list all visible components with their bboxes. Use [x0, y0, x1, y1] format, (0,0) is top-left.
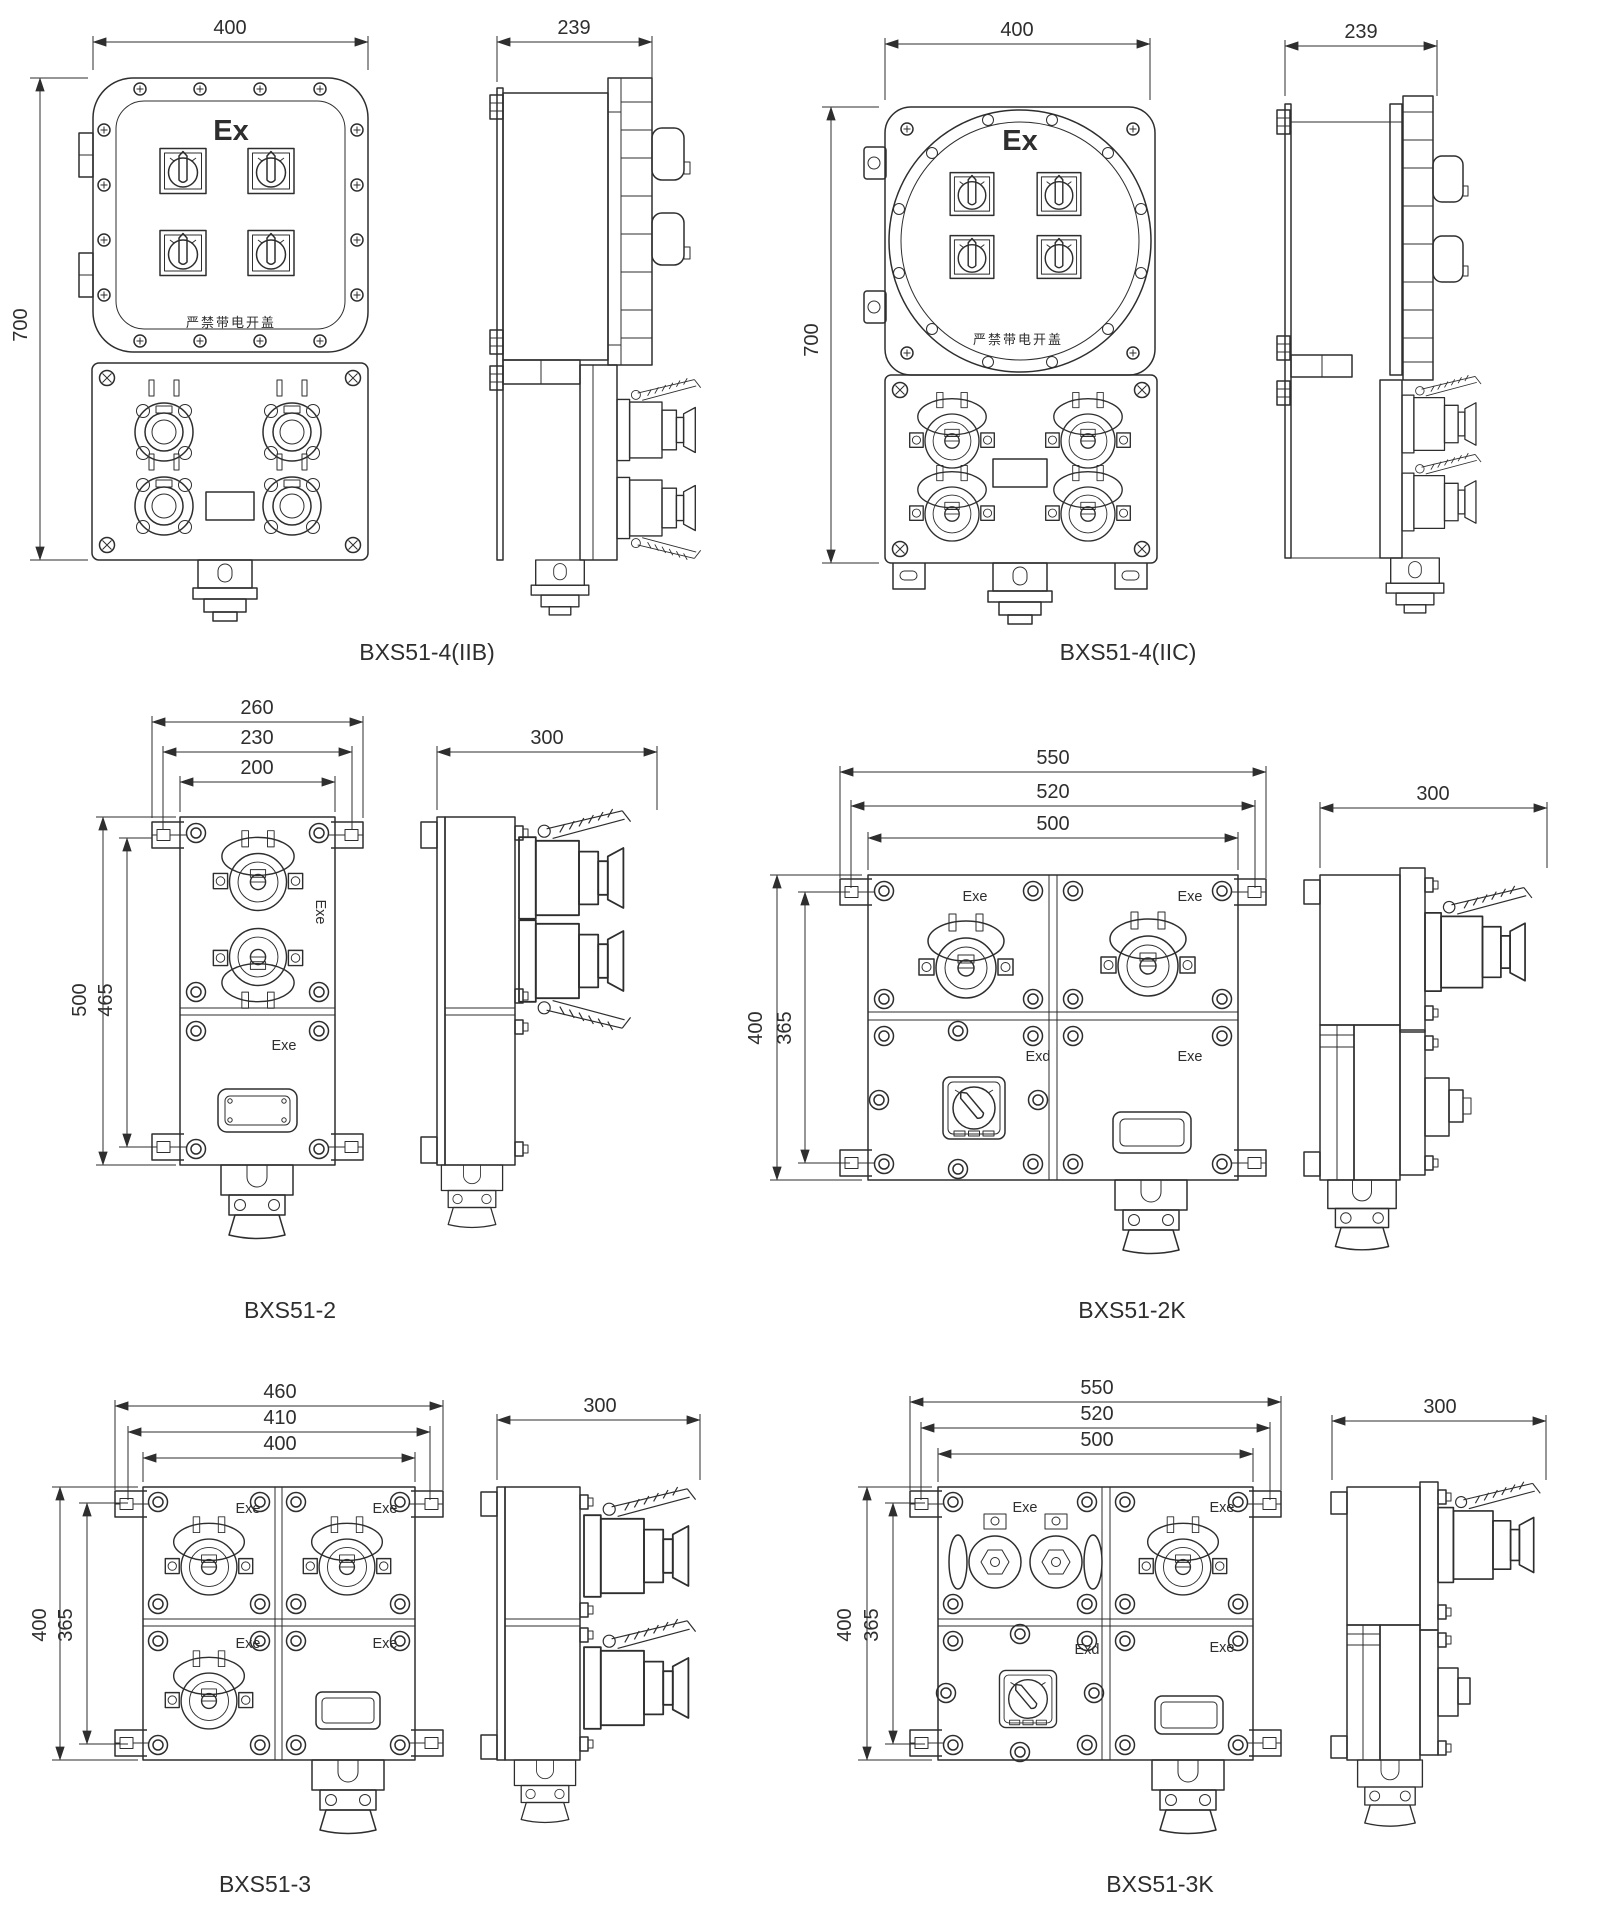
bolt-icon [134, 83, 146, 95]
caption: BXS51-3K [1106, 1871, 1214, 1897]
exe-label: Exe [373, 1636, 398, 1652]
plug-side-icon [1438, 1482, 1540, 1583]
socket-icon [135, 380, 193, 461]
cable-gland-icon [1328, 1180, 1396, 1250]
socket-icon [1139, 1517, 1226, 1595]
dim-widths: 550 520 500 [910, 1377, 1281, 1500]
socket-pair-side-on [949, 1514, 1102, 1589]
socket-icon [165, 1651, 252, 1729]
exe-label: Exe [312, 900, 328, 925]
mounting-lug-icon [329, 1134, 363, 1160]
dim-label: 550 [1080, 1377, 1113, 1399]
enclosure-outline [868, 875, 1238, 1180]
exe-label: Exe [373, 1501, 398, 1517]
dim-label-depth: 300 [530, 727, 563, 749]
rotary-switch-icon [999, 1670, 1056, 1727]
mounting-foot [893, 563, 925, 589]
mounting-lug-icon [152, 822, 186, 848]
mounting-foot [1115, 563, 1147, 589]
cable-gland-icon [531, 560, 589, 615]
bolt-icon [944, 1493, 963, 1512]
front-view-cover: Ex 严禁带电开盖 [79, 78, 368, 352]
hinge-tab [864, 147, 886, 179]
socket-icon [135, 454, 193, 535]
socket-box-outline [92, 363, 368, 560]
rotary-switch-icon [160, 149, 206, 194]
bolt-icon [149, 1493, 168, 1512]
rotary-switch-icon [248, 149, 294, 194]
dim-label: 550 [1036, 747, 1069, 769]
side-view: 300 [481, 1395, 700, 1822]
mounting-lug-icon [840, 1150, 874, 1176]
mount-clip [1331, 1736, 1347, 1758]
cable-gland-icon [441, 1165, 502, 1227]
dim-label: 410 [263, 1407, 296, 1429]
dim-label-depth: 239 [557, 17, 590, 39]
screw-icon [893, 383, 908, 398]
dim-label: 460 [263, 1381, 296, 1403]
front-view: Exe Exe [152, 817, 363, 1239]
mounting-lug-icon [152, 1134, 186, 1160]
dim-label: 500 [69, 983, 91, 1016]
front-view-socket-box [92, 363, 368, 621]
dim-label-depth: 239 [1344, 21, 1377, 43]
dim-heights: 400 365 [29, 1487, 138, 1760]
exe-label: Exe [1178, 889, 1203, 905]
mount-clip [1304, 880, 1320, 904]
ex-marking: Ex [1002, 125, 1037, 157]
plug-side-icon [519, 920, 631, 1030]
plug-side-icon [617, 378, 701, 460]
cable-gland-icon [221, 1165, 293, 1239]
front-view: Exe Exe Exd Exe [910, 1487, 1281, 1834]
cable-gland-icon [988, 563, 1052, 624]
lid-profile [1400, 1030, 1425, 1175]
plug-side-icon [584, 1487, 696, 1597]
mount-clip [421, 822, 437, 848]
socket-icon [1046, 465, 1131, 541]
bolt-icon [187, 824, 206, 843]
mounting-plate [497, 1487, 505, 1760]
dim-label-width: 400 [213, 17, 246, 39]
drawing-bxs51-4iic: 400 700 Ex 严禁带电开盖 239 [801, 19, 1481, 665]
caption: BXS51-4(IIC) [1060, 639, 1197, 665]
dim-height: 700 [801, 107, 879, 563]
switch-dome [1433, 236, 1463, 282]
technical-drawing-sheet: 400 700 Ex 严禁带电开盖 239 [0, 0, 1616, 1927]
mount-clip [1277, 110, 1290, 134]
exe-label: Exe [963, 889, 988, 905]
dim-label-depth: 300 [1416, 783, 1449, 805]
dim-widths: 260 230 200 [152, 697, 363, 830]
switch-dome [1433, 156, 1463, 202]
mounting-lug-icon [1232, 879, 1266, 905]
dim-label: 365 [774, 1011, 796, 1044]
side-view: 300 [1304, 783, 1547, 1250]
socket-icon [303, 1517, 390, 1595]
exe-label: Exe [272, 1038, 297, 1054]
dim-label: 365 [861, 1608, 883, 1641]
mounting-lug-icon [1232, 1150, 1266, 1176]
plug-side-icon [1425, 886, 1532, 991]
hinge-tab [864, 291, 886, 323]
ex-marking: Ex [213, 115, 248, 147]
mounting-plate [1285, 104, 1291, 558]
dim-label-depth: 300 [1423, 1396, 1456, 1418]
dim-heights: 400 365 [745, 875, 862, 1180]
screw-icon [100, 371, 115, 386]
caption: BXS51-2 [244, 1297, 336, 1323]
socket-icon [213, 929, 302, 1009]
cable-gland-icon [1358, 1760, 1423, 1826]
mounting-lug-icon [409, 1491, 443, 1517]
front-view-socket-box [885, 375, 1157, 624]
exe-label: Exe [236, 1636, 261, 1652]
dim-label: 520 [1036, 781, 1069, 803]
dim-label: 230 [240, 727, 273, 749]
drawing-bxs51-4iib: 400 700 Ex 严禁带电开盖 239 [10, 17, 701, 665]
dim-label: 520 [1080, 1403, 1113, 1425]
bolt-icon [875, 882, 894, 901]
mounting-plate [437, 817, 445, 1165]
switch-dome [652, 213, 684, 265]
plug-side-icon [584, 1619, 696, 1729]
rotary-switch-icon [1037, 173, 1081, 216]
dim-label-height: 700 [801, 323, 823, 356]
dim-widths: 460 410 400 [115, 1381, 443, 1500]
dim-label: 400 [263, 1433, 296, 1455]
rotary-switch-icon [943, 1077, 1005, 1139]
bolt-icon [580, 1495, 593, 1509]
front-view: Exe Exe Exd Exe [840, 875, 1266, 1254]
rotary-switch-icon [950, 236, 994, 279]
side-view: 239 [490, 17, 701, 615]
exe-label: Exe [1013, 1500, 1038, 1516]
lid-profile [1400, 868, 1425, 1032]
dim-width: 400 [93, 17, 368, 70]
exd-label: Exd [1075, 1642, 1100, 1658]
dim-label: 500 [1036, 813, 1069, 835]
mount-clip [481, 1735, 497, 1759]
socket-icon [213, 831, 302, 911]
warning-text: 严禁带电开盖 [186, 315, 276, 330]
lid-profile [1420, 1630, 1438, 1755]
socket-icon [919, 914, 1013, 998]
caption: BXS51-4(IIB) [359, 639, 495, 665]
drawing-bxs51-2k: 550 520 500 400 365 Exe Exe Exd Exe [745, 747, 1547, 1323]
dim-label: 400 [29, 1608, 51, 1641]
mounting-lug-icon [910, 1491, 944, 1517]
nameplate [1113, 1112, 1191, 1153]
plug-side-icon [519, 809, 631, 919]
dim-label: 400 [745, 1011, 767, 1044]
mount-clip [481, 1492, 497, 1516]
mounting-lug-icon [115, 1491, 149, 1517]
dim-label: 365 [55, 1608, 77, 1641]
rotary-switch-icon [1037, 236, 1081, 279]
dim-widths: 550 520 500 [840, 747, 1266, 888]
nameplate [218, 1089, 297, 1132]
plug-side-icon [1402, 375, 1481, 453]
cable-gland-icon [1386, 558, 1444, 613]
nameplate [993, 459, 1047, 487]
exe-label: Exe [236, 1501, 261, 1517]
mounting-lug-icon [115, 1730, 149, 1756]
rotary-switch-icon [248, 231, 294, 276]
rotary-switch-icon [950, 173, 994, 216]
mounting-plate [497, 88, 503, 560]
mounting-lug-icon [910, 1730, 944, 1756]
cable-gland-icon [1152, 1760, 1224, 1834]
exd-label: Exd [1026, 1049, 1051, 1065]
exe-label: Exe [1210, 1640, 1235, 1656]
side-view: 300 [1331, 1396, 1546, 1826]
dim-heights: 500 465 [69, 817, 176, 1165]
mount-clip [421, 1137, 437, 1163]
drawing-bxs51-2: 260 230 200 500 465 Exe Exe 300 [69, 697, 657, 1323]
socket-icon [263, 380, 321, 461]
socket-icon [1101, 912, 1195, 996]
front-view: Exe Exe Exe Exe [115, 1487, 443, 1834]
side-view: 300 [421, 727, 657, 1227]
socket-icon [1046, 392, 1131, 468]
plug-side-icon [1402, 453, 1481, 531]
exe-label: Exe [1178, 1049, 1203, 1065]
socket-icon [910, 465, 995, 541]
dim-label: 400 [834, 1608, 856, 1641]
cable-gland-icon [312, 1760, 384, 1834]
dim-label: 260 [240, 697, 273, 719]
socket-box-outline [885, 375, 1157, 563]
drawing-bxs51-3k: 550 520 500 400 365 Exe [834, 1377, 1546, 1897]
mount-clip [1304, 1152, 1320, 1176]
lid-profile [1403, 96, 1433, 380]
drawing-bxs51-3: 460 410 400 400 365 Exe Exe Exe Exe [29, 1381, 700, 1897]
socket-icon [263, 454, 321, 535]
cable-gland-icon [193, 560, 257, 621]
mounting-lug-icon [409, 1730, 443, 1756]
warning-text: 严禁带电开盖 [973, 332, 1063, 347]
bolt-icon [901, 123, 913, 135]
exe-label: Exe [1210, 1500, 1235, 1516]
bolt-icon [1425, 878, 1438, 892]
mount-clip [1331, 1492, 1347, 1514]
caption: BXS51-3 [219, 1871, 311, 1897]
dim-label-height: 700 [10, 308, 32, 341]
lid-profile [608, 78, 652, 365]
dim-heights: 400 365 [834, 1487, 932, 1760]
dim-label-width: 400 [1000, 19, 1033, 41]
bolt-icon [1438, 1490, 1451, 1504]
dim-label: 200 [240, 757, 273, 779]
front-view-cover: Ex 严禁带电开盖 [864, 107, 1155, 375]
dim-label: 465 [95, 983, 117, 1016]
cable-gland-icon [1115, 1180, 1187, 1254]
side-view: 239 [1277, 21, 1481, 613]
drawing-sheet: 400 700 Ex 严禁带电开盖 239 [0, 0, 1616, 1927]
mounting-lug-icon [1247, 1491, 1281, 1517]
nameplate [206, 492, 254, 520]
rotary-switch-icon [160, 231, 206, 276]
caption: BXS51-2K [1078, 1297, 1186, 1323]
socket-icon [910, 392, 995, 468]
dim-height: 700 [10, 78, 88, 560]
dim-label-depth: 300 [583, 1395, 616, 1417]
mounting-lug-icon [840, 879, 874, 905]
socket-icon [165, 1517, 252, 1595]
dim-label: 500 [1080, 1429, 1113, 1451]
mounting-lug-icon [1247, 1730, 1281, 1756]
switch-dome [652, 128, 684, 180]
mounting-lug-icon [329, 822, 363, 848]
lid-profile [1420, 1482, 1438, 1630]
dim-width: 400 [885, 19, 1150, 100]
plug-side-icon [617, 477, 701, 559]
cable-gland-icon [514, 1760, 575, 1822]
